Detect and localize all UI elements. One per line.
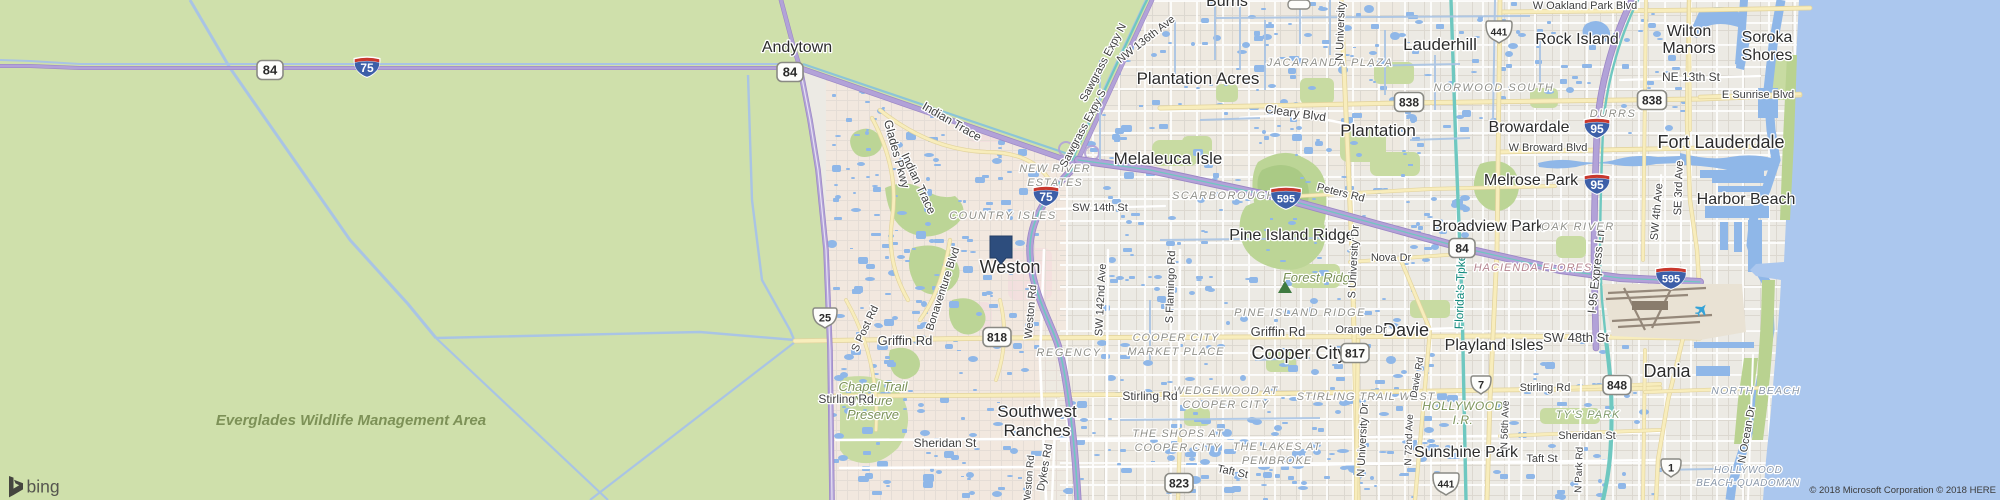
svg-text:Andytown: Andytown <box>762 39 832 56</box>
svg-text:Griffin Rd: Griffin Rd <box>1251 324 1306 339</box>
svg-text:HACIENDA FLORES: HACIENDA FLORES <box>1474 262 1593 274</box>
svg-text:823: 823 <box>1169 476 1189 490</box>
svg-text:Ranches: Ranches <box>1003 421 1070 440</box>
svg-text:Wilton: Wilton <box>1667 23 1711 40</box>
svg-text:Browardale: Browardale <box>1489 119 1570 136</box>
svg-text:Fort Lauderdale: Fort Lauderdale <box>1657 132 1784 152</box>
svg-text:Sheridan St: Sheridan St <box>914 436 977 450</box>
svg-text:Burris: Burris <box>1206 0 1248 10</box>
svg-text:E Sunrise Blvd: E Sunrise Blvd <box>1722 89 1794 101</box>
svg-text:Stirling Rd: Stirling Rd <box>1122 389 1177 403</box>
svg-text:SW 48th St: SW 48th St <box>1543 330 1609 345</box>
svg-text:Plantation: Plantation <box>1340 121 1416 140</box>
svg-text:Shores: Shores <box>1742 47 1793 64</box>
svg-text:1: 1 <box>1668 463 1674 475</box>
svg-text:COOPER CITY: COOPER CITY <box>1133 332 1220 344</box>
svg-text:JACARANDA PLAZA: JACARANDA PLAZA <box>1266 57 1394 69</box>
svg-text:7: 7 <box>1478 380 1484 392</box>
svg-text:NORTH BEACH: NORTH BEACH <box>1711 385 1800 397</box>
svg-text:W Broward Blvd: W Broward Blvd <box>1509 142 1588 154</box>
svg-text:WEDGEWOOD AT: WEDGEWOOD AT <box>1174 385 1279 397</box>
svg-text:Stirling Rd: Stirling Rd <box>1520 382 1571 394</box>
svg-text:TY'S PARK: TY'S PARK <box>1556 409 1621 421</box>
svg-text:Southwest: Southwest <box>997 402 1077 421</box>
svg-text:Sheridan St: Sheridan St <box>1558 430 1615 442</box>
svg-text:25: 25 <box>819 313 831 325</box>
svg-text:Stirling Rd: Stirling Rd <box>818 392 873 406</box>
svg-text:Weston: Weston <box>980 257 1041 277</box>
svg-text:818: 818 <box>987 330 1007 344</box>
svg-text:Pine Island Ridge: Pine Island Ridge <box>1229 227 1355 244</box>
svg-text:838: 838 <box>1399 95 1419 109</box>
svg-text:MARKET PLACE: MARKET PLACE <box>1128 346 1225 358</box>
svg-text:441: 441 <box>1438 479 1455 490</box>
svg-text:COOPER CITY: COOPER CITY <box>1135 442 1222 454</box>
svg-text:W Oakland Park Blvd: W Oakland Park Blvd <box>1533 0 1638 12</box>
svg-text:bing: bing <box>27 477 60 497</box>
svg-text:Cooper City: Cooper City <box>1251 343 1346 363</box>
svg-text:838: 838 <box>1642 93 1662 107</box>
svg-text:595: 595 <box>1277 194 1295 206</box>
svg-text:HOLLYWOOD: HOLLYWOOD <box>1422 399 1503 413</box>
svg-text:REGENCY: REGENCY <box>1037 347 1102 359</box>
svg-text:SW 14th St: SW 14th St <box>1072 202 1128 214</box>
svg-text:N 72nd Ave: N 72nd Ave <box>1403 414 1416 466</box>
svg-text:Griffin Rd: Griffin Rd <box>878 333 933 348</box>
svg-text:Nova Dr: Nova Dr <box>1371 252 1412 264</box>
svg-text:HOLLYWOOD: HOLLYWOOD <box>1714 465 1783 476</box>
svg-text:NEW RIVER: NEW RIVER <box>1019 163 1090 175</box>
svg-text:COUNTRY ISLES: COUNTRY ISLES <box>949 210 1057 222</box>
svg-text:Florida's Tpke: Florida's Tpke <box>1452 254 1469 330</box>
svg-text:95: 95 <box>1590 122 1604 136</box>
svg-text:595: 595 <box>1662 274 1680 286</box>
svg-text:Manors: Manors <box>1662 40 1715 57</box>
svg-text:Melrose Park: Melrose Park <box>1484 172 1579 189</box>
svg-text:75: 75 <box>1039 190 1053 204</box>
svg-text:Preserve: Preserve <box>847 407 899 422</box>
svg-text:THE LAKES AT: THE LAKES AT <box>1233 441 1322 453</box>
svg-text:84: 84 <box>783 65 798 80</box>
svg-text:Davie: Davie <box>1383 320 1429 340</box>
svg-text:Orange Dr: Orange Dr <box>1335 324 1387 336</box>
svg-text:Melaleuca Isle: Melaleuca Isle <box>1114 149 1223 168</box>
svg-text:Plantation Acres: Plantation Acres <box>1137 69 1260 88</box>
svg-text:PEMBROKE: PEMBROKE <box>1242 455 1312 467</box>
svg-text:Soroka: Soroka <box>1742 29 1793 46</box>
svg-text:NE 13th St: NE 13th St <box>1662 70 1721 84</box>
svg-text:75: 75 <box>360 61 374 75</box>
svg-text:COOPER CITY: COOPER CITY <box>1183 399 1270 411</box>
svg-text:© 2018 Microsoft Corporation ©: © 2018 Microsoft Corporation © 2018 HERE <box>1809 485 1996 496</box>
svg-text:Rock Island: Rock Island <box>1535 31 1619 48</box>
svg-text:NORWOOD SOUTH: NORWOOD SOUTH <box>1434 82 1555 94</box>
svg-text:SE 3rd Ave: SE 3rd Ave <box>1672 160 1686 215</box>
svg-text:84: 84 <box>1455 241 1469 255</box>
svg-text:Everglades Wildlife Management: Everglades Wildlife Management Area <box>216 412 486 429</box>
svg-text:Dania: Dania <box>1643 361 1691 381</box>
svg-text:Playland Isles: Playland Isles <box>1445 337 1544 354</box>
svg-text:84: 84 <box>263 63 278 78</box>
svg-text:Broadview Park: Broadview Park <box>1432 218 1545 235</box>
svg-text:PINE ISLAND RIDGE: PINE ISLAND RIDGE <box>1234 307 1366 319</box>
svg-text:S Flamingo Rd: S Flamingo Rd <box>1164 250 1179 323</box>
svg-text:Harbor Beach: Harbor Beach <box>1697 191 1796 208</box>
svg-text:848: 848 <box>1607 378 1627 392</box>
svg-text:N 56th Ave: N 56th Ave <box>1499 400 1512 450</box>
svg-text:95: 95 <box>1590 178 1604 192</box>
svg-text:N Park Rd: N Park Rd <box>1573 447 1586 493</box>
svg-text:817: 817 <box>1345 346 1365 360</box>
svg-text:BEACH-QUADOMAN: BEACH-QUADOMAN <box>1696 478 1800 489</box>
svg-text:Lauderhill: Lauderhill <box>1403 35 1477 54</box>
svg-text:I.R.: I.R. <box>1453 413 1474 427</box>
svg-text:SCARBOROUGH: SCARBOROUGH <box>1172 190 1276 202</box>
svg-text:Taft St: Taft St <box>1526 453 1557 465</box>
svg-text:441: 441 <box>1491 27 1508 38</box>
svg-text:THE SHOPS AT: THE SHOPS AT <box>1132 428 1224 440</box>
